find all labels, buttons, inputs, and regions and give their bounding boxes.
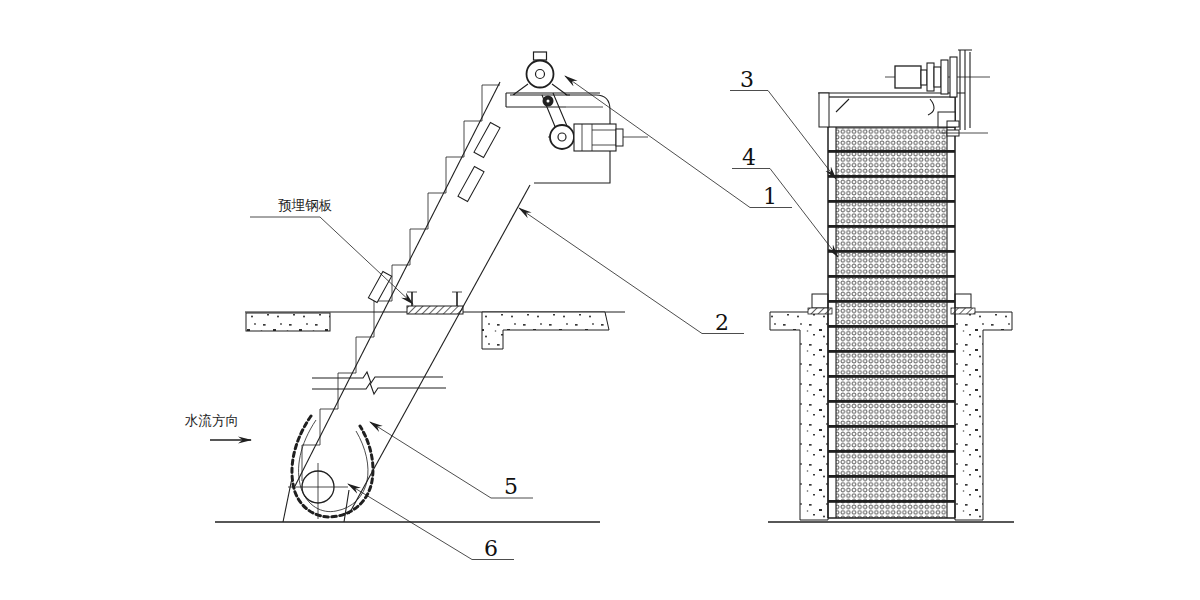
rake-teeth bbox=[302, 85, 500, 481]
callout-4: 4 bbox=[732, 145, 838, 257]
platform-end-left bbox=[819, 93, 829, 127]
rake-plate-2 bbox=[458, 166, 484, 201]
motor-shaft bbox=[536, 70, 545, 79]
callout-4-label: 4 bbox=[742, 145, 756, 170]
callout-6-label: 6 bbox=[484, 536, 498, 561]
flow-direction: 水流方向 bbox=[184, 413, 251, 440]
callout-5: 5 bbox=[370, 422, 533, 499]
callout-1-label: 1 bbox=[763, 184, 777, 209]
drive-bracket bbox=[958, 50, 972, 130]
embedded-plate-label: 预埋钢板 bbox=[278, 198, 333, 213]
chain-loop bbox=[283, 416, 373, 522]
drawing-canvas: 水流方向 预埋钢板 bbox=[0, 0, 1200, 600]
drive-motor bbox=[510, 52, 570, 129]
gearbox bbox=[548, 124, 648, 151]
callout-3-label: 3 bbox=[740, 67, 754, 92]
embedded-plate-hatch bbox=[407, 306, 463, 314]
gearbox-housing bbox=[574, 124, 616, 151]
concrete-wall-right bbox=[955, 312, 1012, 520]
callout-5-label: 5 bbox=[504, 474, 518, 499]
screen-machine-drawing: 水流方向 预埋钢板 bbox=[0, 0, 1200, 600]
motor-front bbox=[895, 66, 921, 88]
motor-cap bbox=[534, 52, 547, 60]
embedded-plate bbox=[407, 292, 463, 314]
leader-5 bbox=[370, 422, 491, 498]
chain-links bbox=[292, 416, 373, 517]
front-view bbox=[768, 50, 1014, 522]
callout-2-label: 2 bbox=[715, 310, 729, 335]
chain-cross-bars bbox=[828, 150, 955, 510]
screen-mesh bbox=[828, 128, 955, 518]
rake-plate-1 bbox=[474, 122, 500, 157]
concrete-ledge-right bbox=[482, 312, 609, 349]
concrete-wall-left bbox=[770, 312, 828, 520]
concrete-ledge-left bbox=[246, 313, 330, 331]
flow-direction-label: 水流方向 bbox=[184, 413, 239, 428]
side-view: 水流方向 预埋钢板 bbox=[184, 52, 648, 522]
embedded-plate-leader bbox=[250, 217, 413, 304]
embedded-plate-callout: 预埋钢板 bbox=[250, 198, 413, 304]
rake-plate-3 bbox=[368, 271, 391, 302]
